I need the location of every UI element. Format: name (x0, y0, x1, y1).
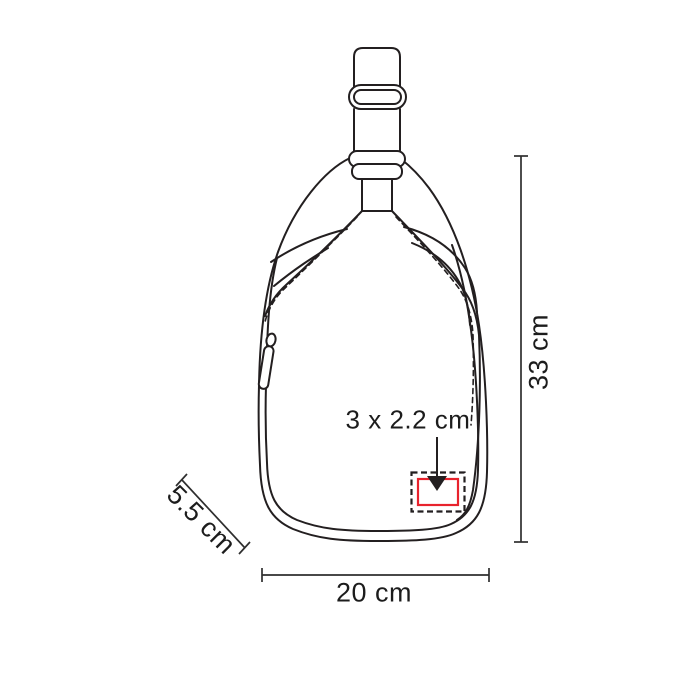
product-dimension-diagram: 3 x 2.2 cm 33 cm 20 cm 5.5 cm (0, 0, 700, 700)
print-area-size-label: 3 x 2.2 cm (346, 405, 471, 436)
dimension-height-label: 33 cm (524, 314, 555, 390)
strap-buckle-outer (349, 85, 406, 109)
strap-keeper-band-bottom (352, 164, 402, 179)
dimension-width-label: 20 cm (336, 578, 412, 609)
